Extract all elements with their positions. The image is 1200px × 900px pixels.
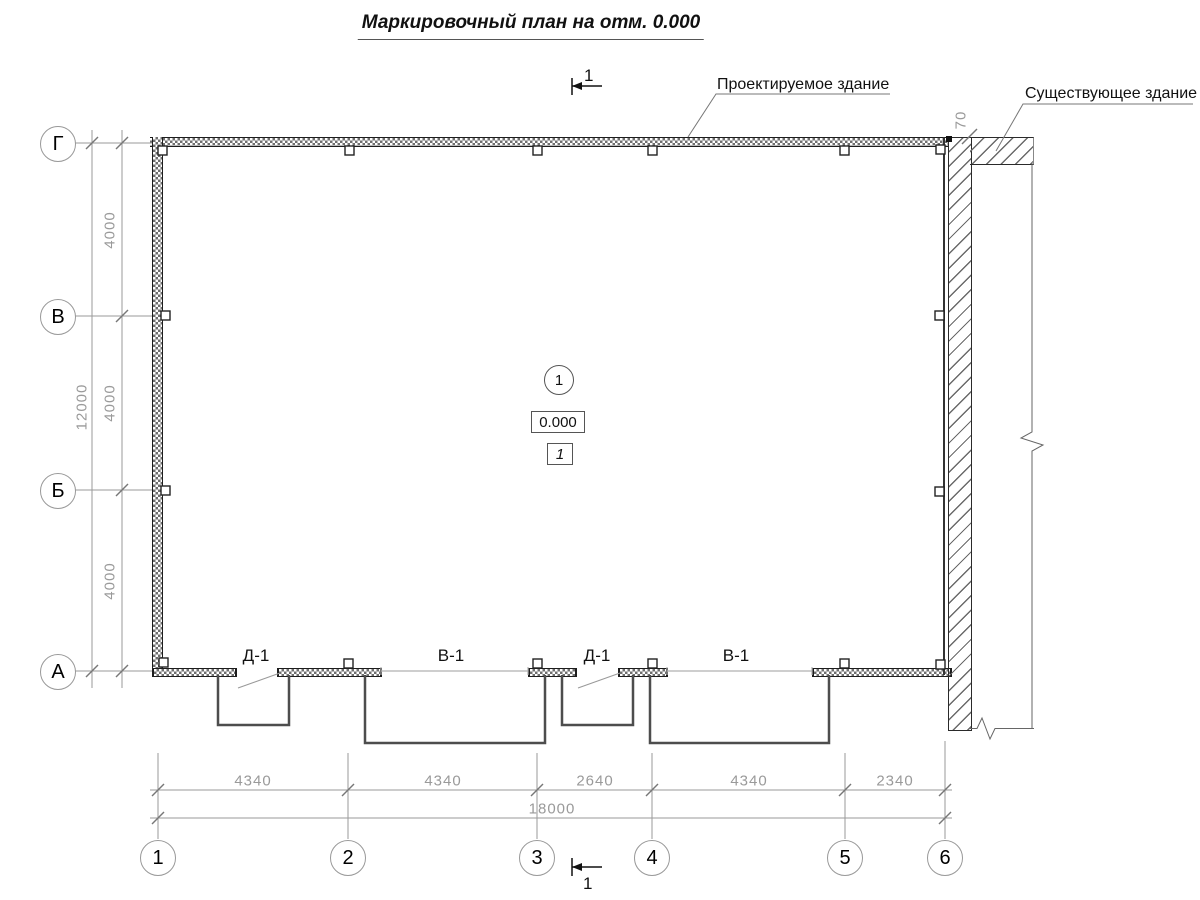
opening-label-door-1: Д-1 — [243, 646, 270, 666]
dim-left-span-3: 4000 — [102, 562, 119, 599]
axis-col-3: 3 — [519, 840, 555, 876]
axis-row-v: В — [40, 299, 76, 335]
gate-lines — [381, 667, 812, 675]
axis-row-a: А — [40, 654, 76, 690]
column-marker — [345, 146, 354, 155]
axis-col-1: 1 — [140, 840, 176, 876]
column-marker — [344, 659, 353, 668]
dim-bottom-total: 18000 — [529, 801, 576, 818]
column-marker — [648, 659, 657, 668]
room-number-box: 1 — [547, 443, 573, 465]
level-mark-box: 0.000 — [531, 411, 585, 433]
axis-col-2: 2 — [330, 840, 366, 876]
column-marker — [161, 311, 170, 320]
dim-bottom-span-1: 4340 — [234, 773, 271, 790]
column-markers — [158, 136, 952, 669]
section-mark-top: 1 — [584, 66, 593, 86]
door-leaf — [578, 673, 620, 688]
gap-dimension-tick — [962, 129, 977, 144]
drawing-title: Маркировочный план на отм. 0.000 — [358, 12, 704, 40]
dim-bottom-span-3: 2640 — [576, 773, 613, 790]
axis-row-g: Г — [40, 126, 76, 162]
column-marker — [533, 146, 542, 155]
section-mark-bottom: 1 — [583, 874, 592, 894]
column-marker — [161, 486, 170, 495]
dim-bottom-span-5: 2340 — [876, 773, 913, 790]
dim-building-gap: 70 — [953, 111, 970, 130]
porch — [365, 675, 545, 743]
break-line — [1021, 163, 1043, 728]
column-marker — [840, 146, 849, 155]
column-marker — [935, 487, 944, 496]
column-marker — [648, 146, 657, 155]
existing-building-label: Существующее здание — [1025, 85, 1197, 103]
designed-building-label: Проектируемое здание — [717, 76, 889, 94]
section-marks — [572, 78, 602, 876]
dim-bottom-span-2: 4340 — [424, 773, 461, 790]
column-marker — [935, 311, 944, 320]
dim-left-span-1: 4000 — [102, 211, 119, 248]
dim-left-total: 12000 — [74, 384, 91, 431]
break-line — [970, 718, 1034, 739]
existing-building-edges — [970, 163, 1043, 739]
axis-col-6: 6 — [927, 840, 963, 876]
leader-existing — [996, 104, 1193, 151]
dim-left-span-2: 4000 — [102, 384, 119, 421]
corner-joint-marker — [946, 136, 952, 142]
leader-designed — [688, 94, 890, 137]
porch — [562, 675, 633, 725]
dim-bottom-span-4: 4340 — [730, 773, 767, 790]
opening-label-door-2: Д-1 — [584, 646, 611, 666]
axis-col-4: 4 — [634, 840, 670, 876]
column-marker — [936, 145, 945, 154]
axis-row-b: Б — [40, 473, 76, 509]
column-marker — [840, 659, 849, 668]
opening-label-gate-2: В-1 — [723, 646, 749, 666]
node-number-bubble: 1 — [544, 365, 574, 395]
column-marker — [159, 658, 168, 667]
porches — [218, 675, 829, 743]
porch — [650, 675, 829, 743]
axis-col-5: 5 — [827, 840, 863, 876]
column-marker — [533, 659, 542, 668]
opening-label-gate-1: В-1 — [438, 646, 464, 666]
plan-linework — [0, 0, 1200, 900]
column-marker — [936, 660, 945, 669]
door-leaf — [238, 673, 280, 688]
column-marker — [158, 146, 167, 155]
floor-plan-drawing: Маркировочный план на отм. 0.000 Проекти… — [0, 0, 1200, 900]
